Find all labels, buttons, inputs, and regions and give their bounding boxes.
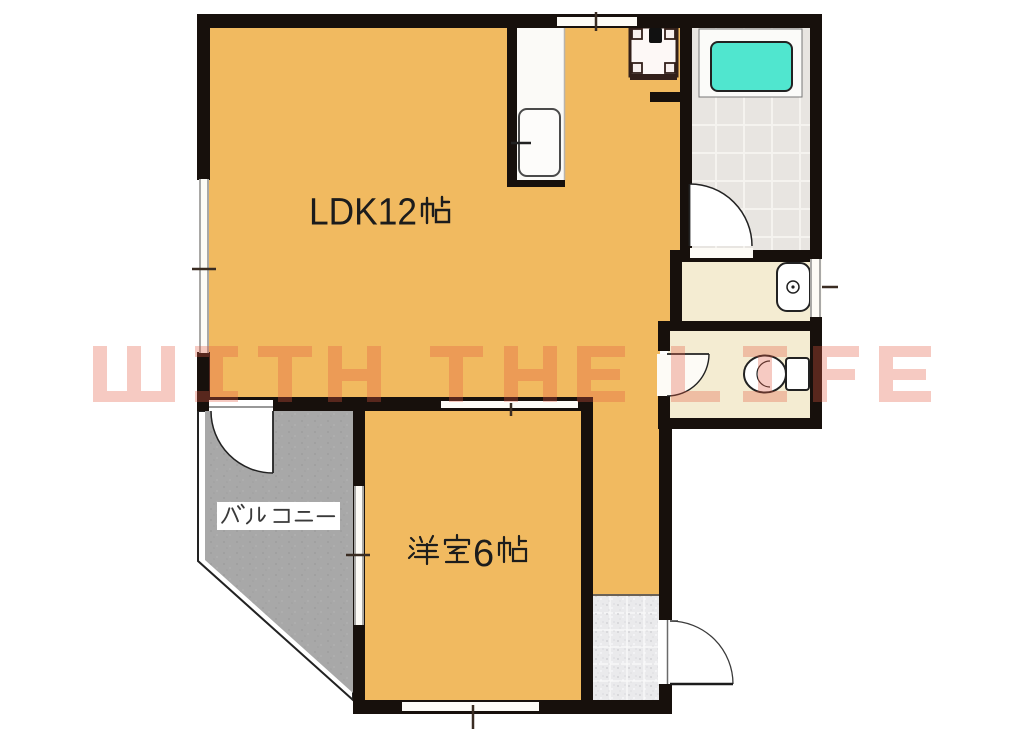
svg-text:LDK12: LDK12 [309,192,417,234]
svg-text:6: 6 [473,533,494,575]
